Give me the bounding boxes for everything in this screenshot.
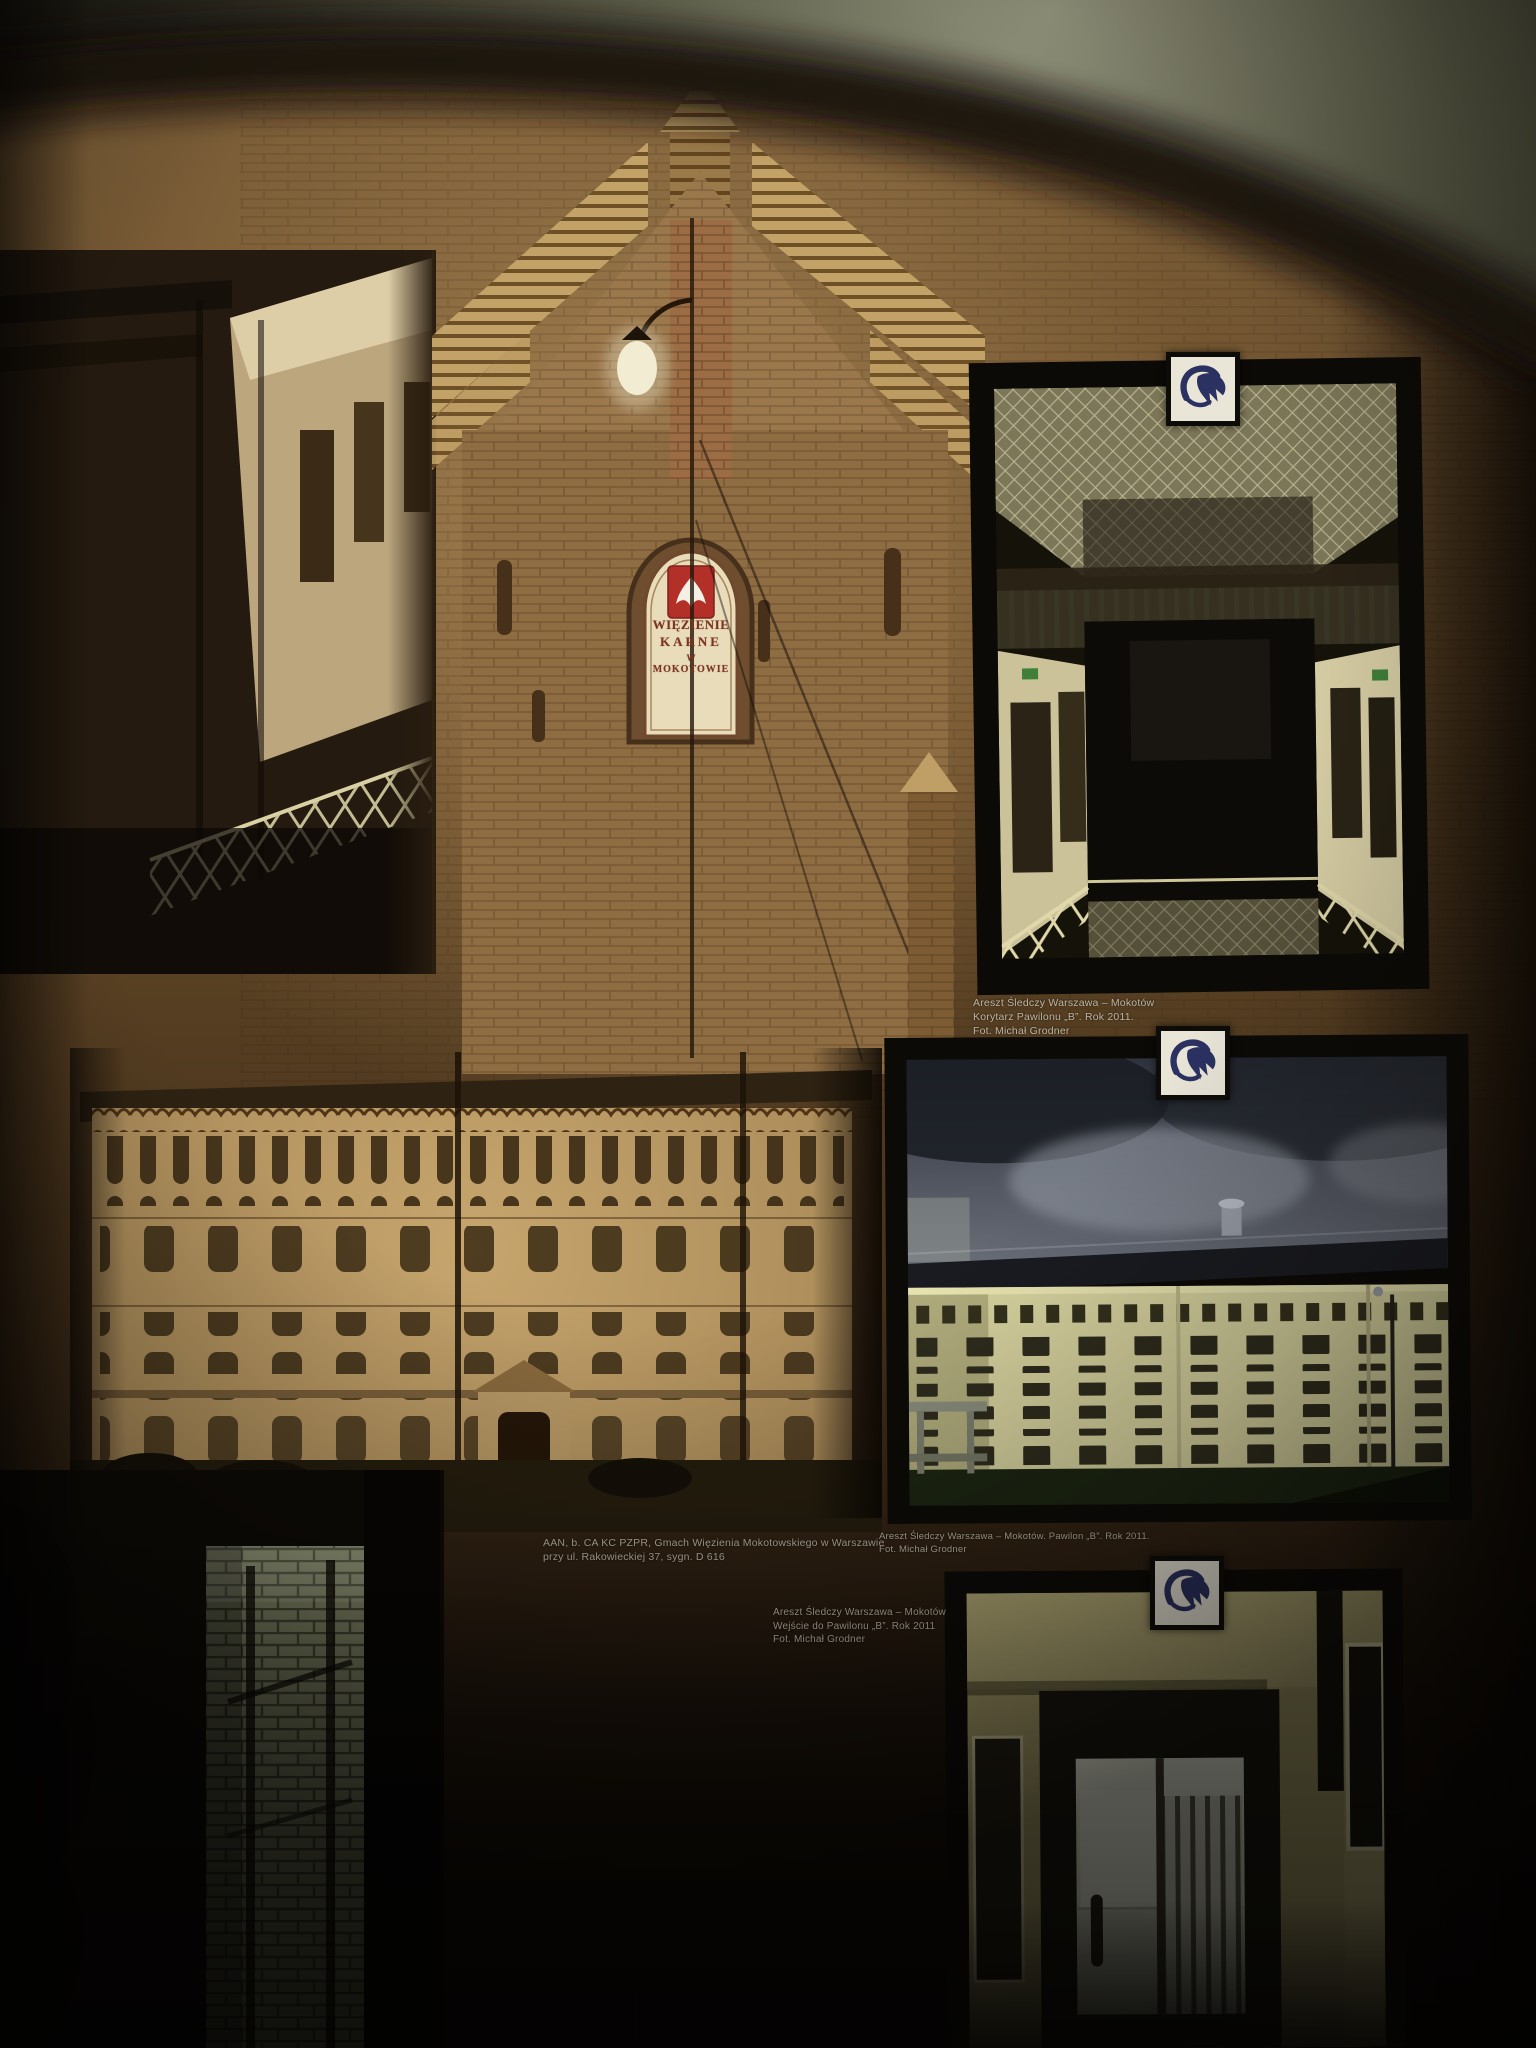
- caption-line: Fot. Michał Grodner: [773, 1633, 946, 1647]
- caption-mural-archive: AAN, b. CA KC PZPR, Gmach Więzienia Moko…: [543, 1536, 885, 1564]
- caption-line: Areszt Śledczy Warszawa – Mokotów: [973, 996, 1154, 1010]
- sw-bird-icon: [1155, 1561, 1219, 1625]
- caption-line: Areszt Śledczy Warszawa – Mokotów. Pawil…: [879, 1530, 1150, 1543]
- caption-line: AAN, b. CA KC PZPR, Gmach Więzienia Moko…: [543, 1536, 885, 1550]
- caption-line: Fot. Michał Grodner: [973, 1024, 1154, 1038]
- exhibit-wall-photo: WIĘZIENIE KARNE W MOKOTOWIE Areszt Śledc…: [0, 0, 1536, 2048]
- photo-corridor: [969, 357, 1430, 995]
- caption-line: Korytarz Pawilonu „B”. Rok 2011.: [973, 1010, 1154, 1024]
- caption-pavilion: Areszt Śledczy Warszawa – Mokotów. Pawil…: [879, 1530, 1150, 1556]
- caption-line: Wejście do Pawilonu „B”. Rok 2011: [773, 1620, 946, 1634]
- sign-line: KARNE: [634, 634, 748, 650]
- sw-bird-icon: [1171, 357, 1235, 421]
- sign-line: MOKOTOWIE: [634, 664, 748, 675]
- mural-facade-building: [70, 1048, 882, 1532]
- caption-line: Fot. Michał Grodner: [879, 1543, 1150, 1556]
- sw-prison-service-logo-badge: [1166, 352, 1240, 426]
- caption-line: przy ul. Rakowieckiej 37, sygn. D 616: [543, 1550, 885, 1564]
- caption-line: Areszt Śledczy Warszawa – Mokotów: [773, 1606, 946, 1620]
- sw-bird-icon: [1161, 1031, 1225, 1095]
- sw-prison-service-logo-badge: [1156, 1026, 1230, 1100]
- prison-sign-text: WIĘZIENIE KARNE W MOKOTOWIE: [634, 617, 748, 675]
- caption-entrance: Areszt Śledczy Warszawa – Mokotów Wejści…: [773, 1606, 946, 1647]
- mural-artwork: [0, 0, 1536, 2048]
- sw-prison-service-logo-badge: [1150, 1556, 1224, 1630]
- sign-line: W: [634, 653, 748, 663]
- sign-line: WIĘZIENIE: [634, 617, 748, 633]
- caption-corridor: Areszt Śledczy Warszawa – Mokotów Koryta…: [973, 996, 1154, 1038]
